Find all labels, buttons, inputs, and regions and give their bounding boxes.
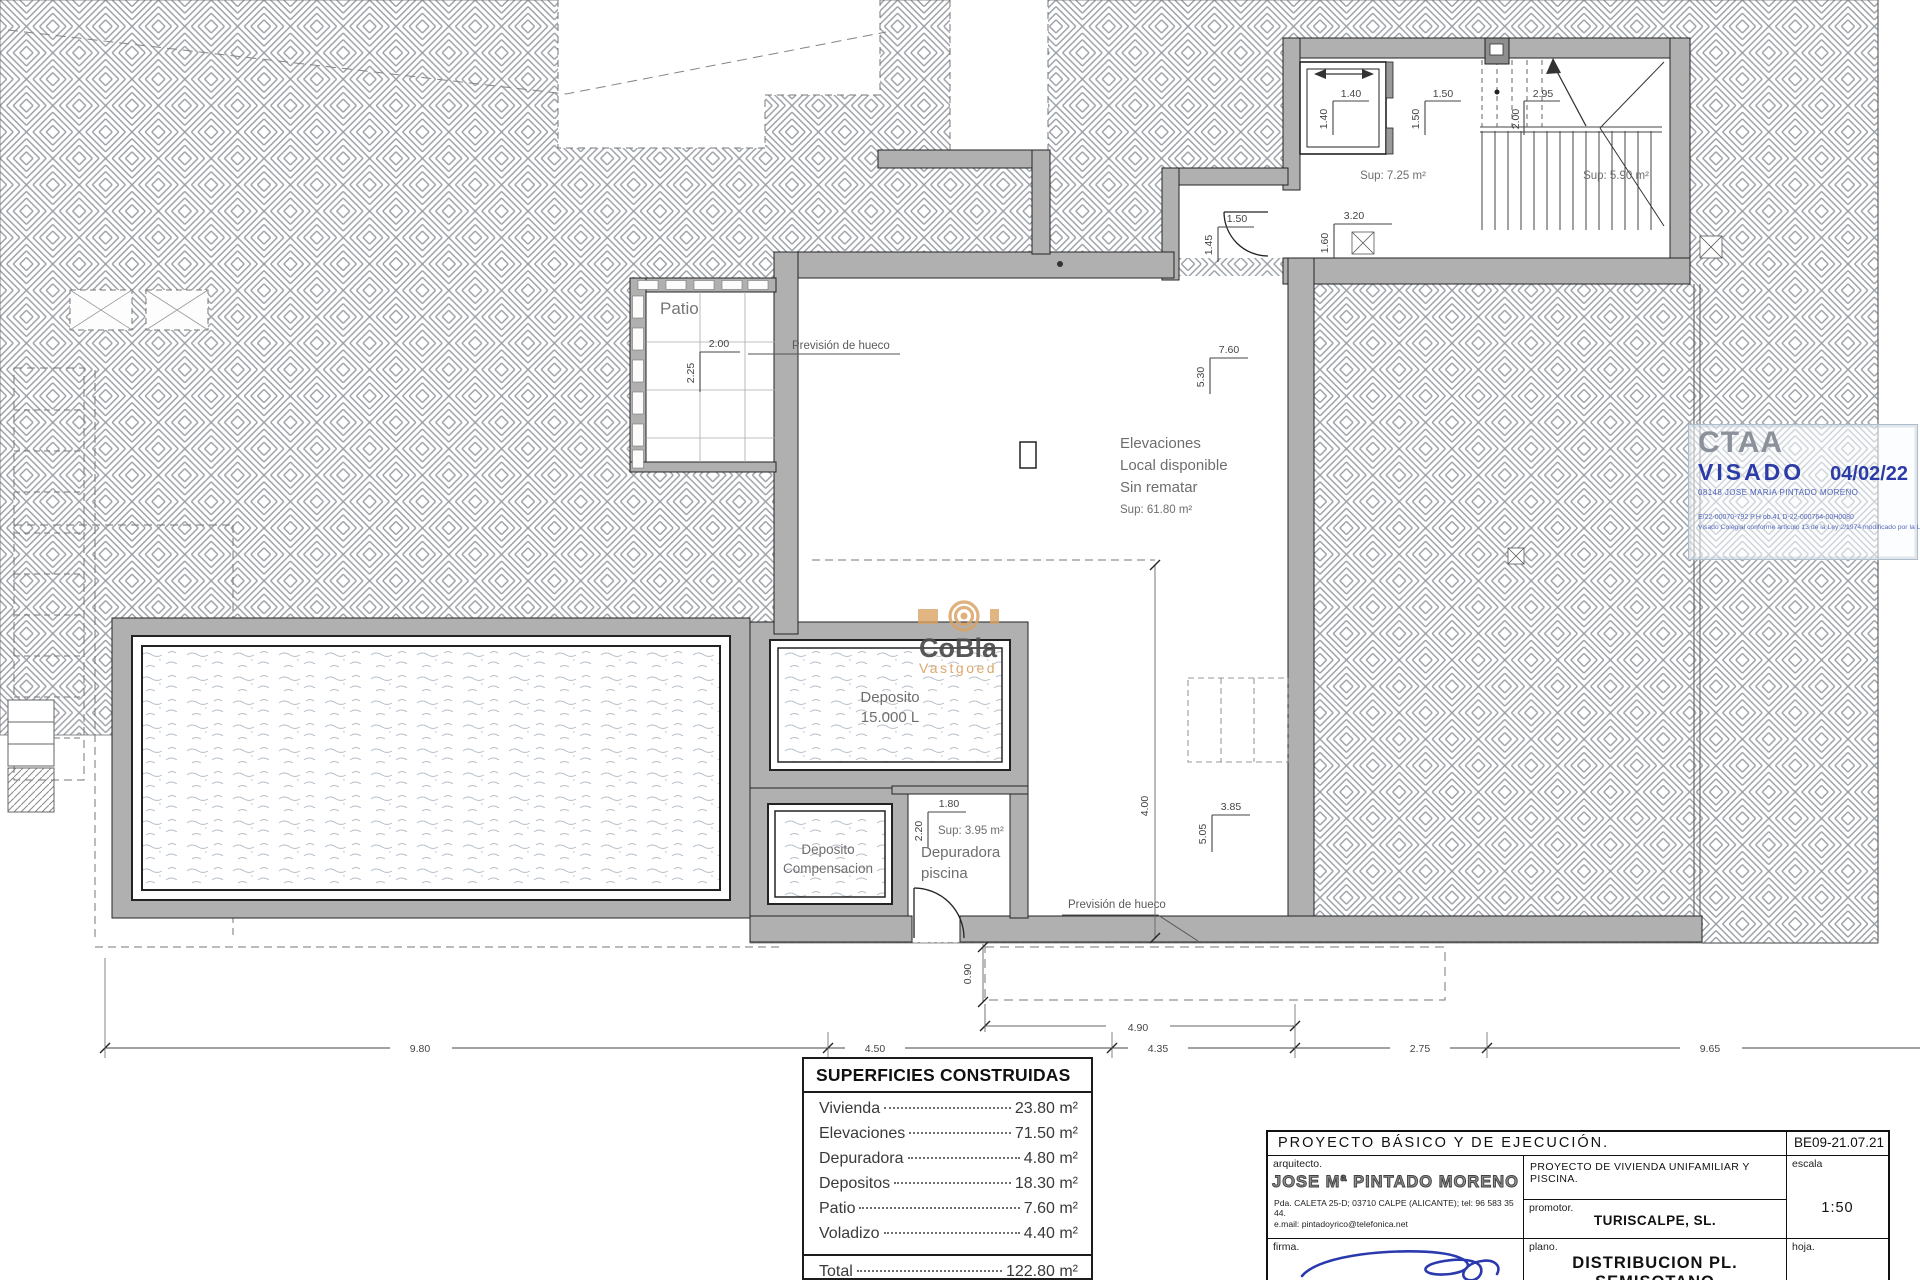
pool-tank: [112, 618, 750, 918]
dim-landing-w: 1.50: [1433, 88, 1454, 100]
stamp-visado-row: VISADO 04/02/22: [1698, 459, 1908, 486]
areas-table-rows: Vivienda23.80 m² Elevaciones71.50 m² Dep…: [804, 1093, 1091, 1254]
areas-table: SUPERFICIES CONSTRUIDAS Vivienda23.80 m²…: [802, 1057, 1093, 1280]
dim-elevator-h: 1.40: [1318, 109, 1330, 130]
plano-label: plano.: [1529, 1241, 1558, 1253]
dotted-leader: [909, 1132, 1011, 1134]
tank-main-label-2: 15.000 L: [861, 709, 919, 726]
elevator: [1300, 62, 1393, 154]
row-label: Vivienda: [819, 1100, 880, 1118]
dim-overall-3: 4.35: [1148, 1043, 1169, 1055]
scale-cell: escala 1:50: [1787, 1156, 1888, 1239]
depuradora-label-2: piscina: [921, 865, 968, 882]
scale-label: escala: [1792, 1158, 1822, 1170]
project-description: PROYECTO DE VIVIENDA UNIFAMILIAR Y PISCI…: [1524, 1156, 1787, 1200]
logo-block-right: [990, 609, 999, 624]
watermark-icon: [894, 596, 1022, 636]
patio-label: Patio: [660, 299, 699, 318]
areas-table-title: SUPERFICIES CONSTRUIDAS: [804, 1059, 1091, 1093]
dim-patio-w: 2.00: [709, 338, 730, 350]
dim-door-w: 1.50: [1227, 213, 1248, 225]
plano-name: DISTRIBUCION PL. SEMISOTANO: [1524, 1239, 1786, 1280]
project-title: PROYECTO BÁSICO Y DE EJECUCIÓN.: [1268, 1132, 1787, 1156]
column-symbol: [1020, 442, 1036, 468]
architect-email: e.mail: pintadoyrico@telefonica.net: [1274, 1219, 1523, 1229]
local-sup-label: Sup: 61.80 m²: [1120, 504, 1192, 516]
architect-name: JOSE Mª PINTADO MORENO: [1268, 1173, 1523, 1192]
table-row: Depositos18.30 m²: [819, 1175, 1078, 1200]
local-label-1: Elevaciones: [1120, 435, 1201, 452]
dim-hueco-w: 3.85: [1221, 801, 1242, 813]
row-value: 4.40 m²: [1024, 1225, 1078, 1243]
tank-comp-label-2: Compensacion: [783, 861, 873, 876]
stamp-org: CTAA: [1698, 427, 1908, 459]
stamp-visado: VISADO: [1698, 459, 1804, 486]
dim-local-w: 7.60: [1219, 344, 1240, 356]
table-row: Voladizo4.40 m²: [819, 1225, 1078, 1250]
project-code: BE09-21.07.21: [1787, 1132, 1888, 1156]
dim-passage-h: 1.60: [1319, 233, 1331, 254]
dim-overall-5: 9.65: [1700, 1043, 1721, 1055]
stair-ramp-sup: Sup: 5.90 m²: [1583, 170, 1649, 182]
visado-stamp: CTAA VISADO 04/02/22 08148 JOSE MARIA PI…: [1688, 424, 1918, 560]
stair-landing-sup: Sup: 7.25 m²: [1360, 170, 1426, 182]
dim-voladizo-w: 4.90: [1128, 1022, 1149, 1034]
dim-elevator-w: 1.40: [1341, 88, 1362, 100]
row-label: Elevaciones: [819, 1125, 905, 1143]
table-row: Patio7.60 m²: [819, 1200, 1078, 1225]
promotor-label: promotor.: [1529, 1202, 1573, 1214]
dim-voladizo-d: 0.90: [962, 964, 974, 985]
stamp-legal: Visado Colegial conforme artículo 13 de …: [1698, 524, 1908, 531]
local-label-2: Local disponible: [1120, 457, 1228, 474]
row-label: Patio: [819, 1200, 855, 1218]
plano-cell: plano. DISTRIBUCION PL. SEMISOTANO: [1524, 1239, 1787, 1280]
row-value: 23.80 m²: [1015, 1100, 1078, 1118]
prevision-hueco-label-1: Previsión de hueco: [792, 340, 890, 352]
signature-cell: firma.: [1268, 1239, 1524, 1280]
stamp-refs: E/22-00070-792 P.H ob.41 D-22-000764-00H…: [1698, 514, 1908, 521]
depuradora-sup: Sup: 3.95 m²: [938, 825, 1004, 837]
tank-comp-label-1: Deposito: [801, 842, 854, 857]
architect-label: arquitecto.: [1273, 1158, 1322, 1170]
scale-value: 1:50: [1787, 1200, 1888, 1216]
table-row: Depuradora4.80 m²: [819, 1150, 1078, 1175]
dim-passage-w: 3.20: [1344, 210, 1365, 222]
row-value: 4.80 m²: [1024, 1150, 1078, 1168]
row-label: Voladizo: [819, 1225, 880, 1243]
sheet-cell: hoja.: [1787, 1239, 1888, 1280]
tank-main-label-1: Deposito: [860, 689, 919, 706]
total-value: 122.80 m²: [1006, 1263, 1078, 1280]
table-row: Elevaciones71.50 m²: [819, 1125, 1078, 1150]
dim-stair-w: 2.95: [1533, 88, 1554, 100]
dim-overall-4: 2.75: [1410, 1043, 1431, 1055]
table-total-row: Total 122.80 m²: [804, 1254, 1091, 1280]
total-label: Total: [819, 1263, 853, 1280]
sheet-label: hoja.: [1792, 1241, 1815, 1253]
dotted-leader: [908, 1157, 1020, 1159]
row-label: Depositos: [819, 1175, 890, 1193]
row-value: 7.60 m²: [1024, 1200, 1078, 1218]
watermark-logo: CoBla Vastgoed: [894, 596, 1022, 677]
row-value: 18.30 m²: [1015, 1175, 1078, 1193]
architect-cell: arquitecto. JOSE Mª PINTADO MORENO Pda. …: [1268, 1156, 1524, 1239]
watermark-sub: Vastgoed: [894, 660, 1022, 677]
floor-plan-canvas: Patio: [0, 0, 1920, 1280]
dim-depuradora-w: 1.80: [939, 798, 960, 810]
dim-landing-h: 1.50: [1410, 109, 1422, 130]
table-row: Vivienda23.80 m²: [819, 1100, 1078, 1125]
dotted-leader: [894, 1182, 1011, 1184]
watermark-name: CoBla: [894, 636, 1022, 660]
depuradora-label-1: Depuradora: [921, 844, 1001, 861]
stamp-date: 04/02/22: [1830, 463, 1908, 486]
prevision-hueco-label-2: Previsión de hueco: [1068, 899, 1166, 911]
promotor-cell: promotor. TURISCALPE, SL.: [1524, 1200, 1787, 1239]
dim-hueco-len: 4.00: [1139, 796, 1151, 817]
row-label: Depuradora: [819, 1150, 904, 1168]
dim-door-h: 1.45: [1203, 235, 1215, 256]
title-block: PROYECTO BÁSICO Y DE EJECUCIÓN. BE09-21.…: [1266, 1130, 1890, 1280]
stamp-holder: 08148 JOSE MARIA PINTADO MORENO: [1698, 488, 1908, 497]
dotted-leader: [859, 1207, 1019, 1209]
architect-address: Pda. CALETA 25-D; 03710 CALPE (ALICANTE)…: [1274, 1198, 1523, 1218]
signature-scribble: [1292, 1242, 1512, 1280]
dotted-leader: [884, 1107, 1011, 1109]
dim-stair-h: 2.00: [1510, 109, 1522, 130]
dim-overall-2: 4.50: [865, 1043, 886, 1055]
dim-overall-1: 9.80: [410, 1043, 431, 1055]
local-label-3: Sin rematar: [1120, 479, 1198, 496]
dim-patio-h: 2.25: [685, 363, 697, 384]
row-value: 71.50 m²: [1015, 1125, 1078, 1143]
dotted-leader: [884, 1232, 1020, 1234]
dim-hueco-h: 5.05: [1197, 824, 1209, 845]
logo-arcs-icon: [941, 597, 987, 635]
dim-local-h: 5.30: [1195, 367, 1207, 388]
logo-block-left: [918, 609, 938, 624]
dim-depuradora-h: 2.20: [913, 821, 925, 842]
dotted-leader: [857, 1270, 1002, 1272]
